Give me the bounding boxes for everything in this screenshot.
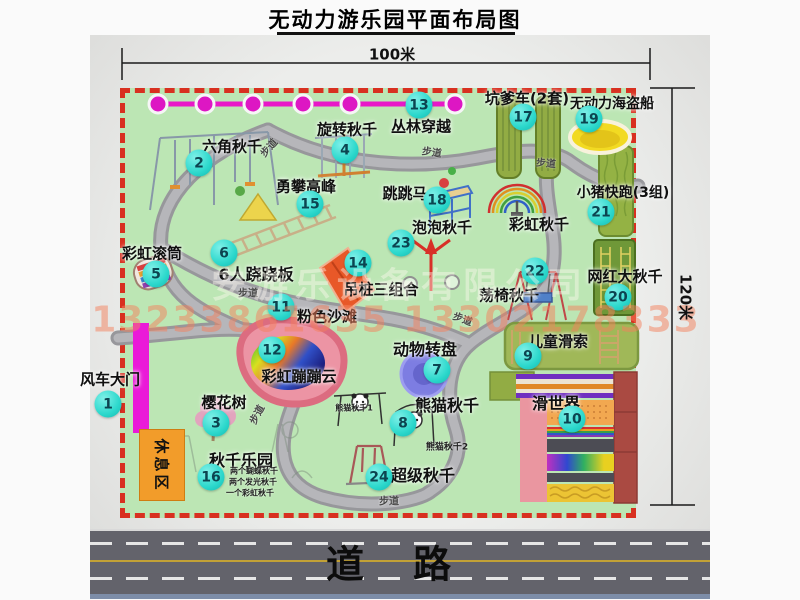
item-marker-23: 23 [388,230,415,257]
road: 道 路 [90,529,710,598]
item-marker-19: 19 [576,106,603,133]
dimension-label-top: 100米 [369,44,415,65]
road-lane-line-bottom [90,577,710,580]
item-marker-21: 21 [588,199,615,226]
item-marker-12: 12 [259,337,286,364]
item-label-18: 跳跳马 [382,183,427,204]
item-label-14: 吊桩三组合 [343,279,418,300]
item-marker-10: 10 [559,406,586,433]
item-marker-15: 15 [297,191,324,218]
item-marker-9: 9 [515,343,542,370]
item-label-22: 荡椅秋千 [479,285,539,306]
item-marker-24: 24 [366,464,393,491]
item-marker-1: 1 [95,391,122,418]
item-marker-22: 22 [522,258,549,285]
item-marker-16: 16 [198,464,225,491]
walkway-label-1: 步道 [421,142,443,160]
item-marker-6: 6 [211,240,238,267]
item-label-20: 网红大秋千 [587,266,662,287]
road-label-char1: 道 [326,534,364,589]
item-marker-7: 7 [424,357,451,384]
item-marker-13: 13 [406,92,433,119]
road-lane-line-top [90,542,710,545]
item-marker-18: 18 [424,187,451,214]
extra-label-4: 两个发光秋千 [229,477,277,488]
road-label-char2: 路 [413,534,451,589]
item-marker-4: 4 [332,137,359,164]
walkway-label-6: 步道 [379,493,399,508]
item-label-11: 粉色沙滩 [297,306,357,327]
item-marker-5: 5 [143,261,170,288]
extra-label-1: 熊猫秋千1 [335,403,373,414]
walkway-label-3: 步道 [238,285,258,300]
item-marker-14: 14 [345,250,372,277]
rest-area-box: 休息区 [139,429,185,501]
item-label-7: 动物转盘 [393,336,457,360]
item-label-3: 樱花树 [201,392,246,413]
item-label-2: 六角秋千 [202,136,262,157]
item-label-12: 彩虹蹦蹦云 [261,366,336,387]
item-label-13: 丛林穿越 [391,116,451,137]
item-marker-2: 2 [186,150,213,177]
rest-area-label: 休息区 [152,438,173,492]
extra-label-2: 熊猫秋千2 [426,440,468,453]
item-label-8: 熊猫秋千 [415,392,479,416]
item-marker-11: 11 [268,294,295,321]
extra-label-5: 一个彩虹秋千 [226,488,274,499]
item-marker-8: 8 [390,410,417,437]
item-marker-3: 3 [203,410,230,437]
extra-label-0: 彩虹秋千 [509,214,569,235]
item-label-24: 超级秋千 [391,462,455,486]
extra-label-3: 两个蝴蝶秋千 [230,466,278,477]
item-label-21: 小猪快跑(3组) [577,182,670,202]
park-plan-image: 道 路 [0,0,800,600]
item-label-23: 泡泡秋千 [412,217,472,238]
item-marker-20: 20 [605,284,632,311]
item-label-1: 风车大门 [80,369,140,390]
item-marker-17: 17 [510,104,537,131]
walkway-label-2: 步道 [535,154,556,171]
road-center-line [90,560,710,562]
photo-bottom-edge [90,594,710,599]
title-underline [277,32,515,35]
dimension-label-right: 120米 [676,274,697,320]
page-title: 无动力游乐园平面布局图 [269,4,522,34]
